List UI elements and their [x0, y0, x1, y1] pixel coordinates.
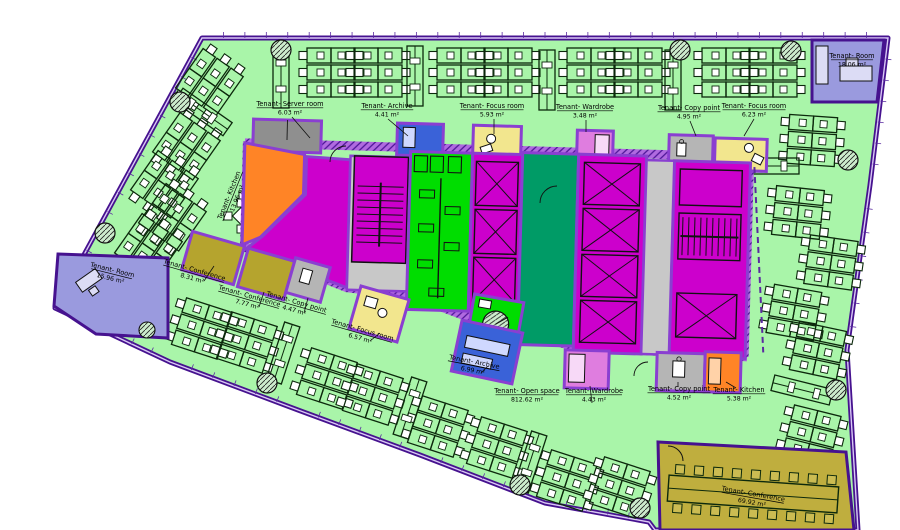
stair2-shaft-cell: [676, 293, 737, 339]
focus-tr-chair: [744, 143, 753, 152]
room-conference-large: [658, 442, 854, 530]
room-label-text: Tenant- Focus room: [721, 102, 786, 110]
copy-bottom-printer: [673, 361, 685, 377]
room-area-text: 4.41 m²: [375, 112, 400, 119]
archive-shelf: [403, 127, 416, 147]
column: [95, 223, 115, 243]
room-label-text: Tenant- Wardrobe: [564, 387, 623, 395]
column: [510, 475, 530, 495]
room-label-text: Tenant- Archive: [360, 102, 412, 110]
room-area-text: 4.52 m²: [667, 395, 692, 402]
room-area-text: 812.62 m²: [511, 397, 544, 404]
room-area-text: 18.06 m²: [838, 62, 867, 69]
floor-plan-stage: Tenant- Server room6.03 m²Tenant- Archiv…: [0, 0, 900, 530]
room-label-text: Tenant- Room: [828, 52, 874, 60]
column: [838, 150, 858, 170]
room-label-text: Tenant- Focus room: [459, 102, 524, 110]
column: [139, 322, 155, 338]
elevator-1-cells: [473, 161, 519, 302]
topright-cabinet: [816, 46, 828, 84]
room-area-text: 5.93 m²: [480, 112, 505, 119]
room-topright-box: [812, 40, 884, 102]
core-shaft: [517, 153, 578, 346]
room-label-text: Tenant- Open space: [493, 387, 559, 395]
room-label-text: Tenant- Server room: [255, 100, 323, 108]
server-partition: [287, 120, 288, 140]
column: [781, 41, 801, 61]
column: [826, 380, 846, 400]
room-label-text: Tenant- Copy point: [647, 385, 710, 393]
focus-top-chair: [486, 134, 495, 143]
column: [257, 373, 277, 393]
column: [271, 40, 291, 60]
room-label-text: Tenant- Kitchen: [712, 386, 764, 394]
room-archive-mid: [451, 320, 522, 384]
room-label-text: Tenant- Wardrobe: [555, 103, 614, 111]
room-area-text: 4.95 m²: [677, 114, 702, 121]
kitchen-bottom-counter: [708, 358, 721, 384]
floor-plan-drawing: Tenant- Server room6.03 m²Tenant- Archiv…: [0, 0, 900, 530]
wardrobe-mid-closet: [568, 354, 585, 382]
column: [170, 92, 190, 112]
room-area-text: 6.23 m²: [742, 112, 767, 119]
copy-top-printer: [677, 143, 686, 156]
room-copy-left: [286, 258, 331, 303]
column: [630, 498, 650, 518]
room-label-text: Tenant- Copy point: [657, 104, 720, 112]
column: [670, 40, 690, 60]
room-area-text: 4.43 m²: [582, 397, 607, 404]
room-area-text: 5.38 m²: [727, 396, 752, 403]
room-area-text: 3.48 m²: [573, 113, 598, 120]
stair2-lobby: [679, 169, 742, 207]
room-area-text: 6.03 m²: [278, 110, 303, 117]
